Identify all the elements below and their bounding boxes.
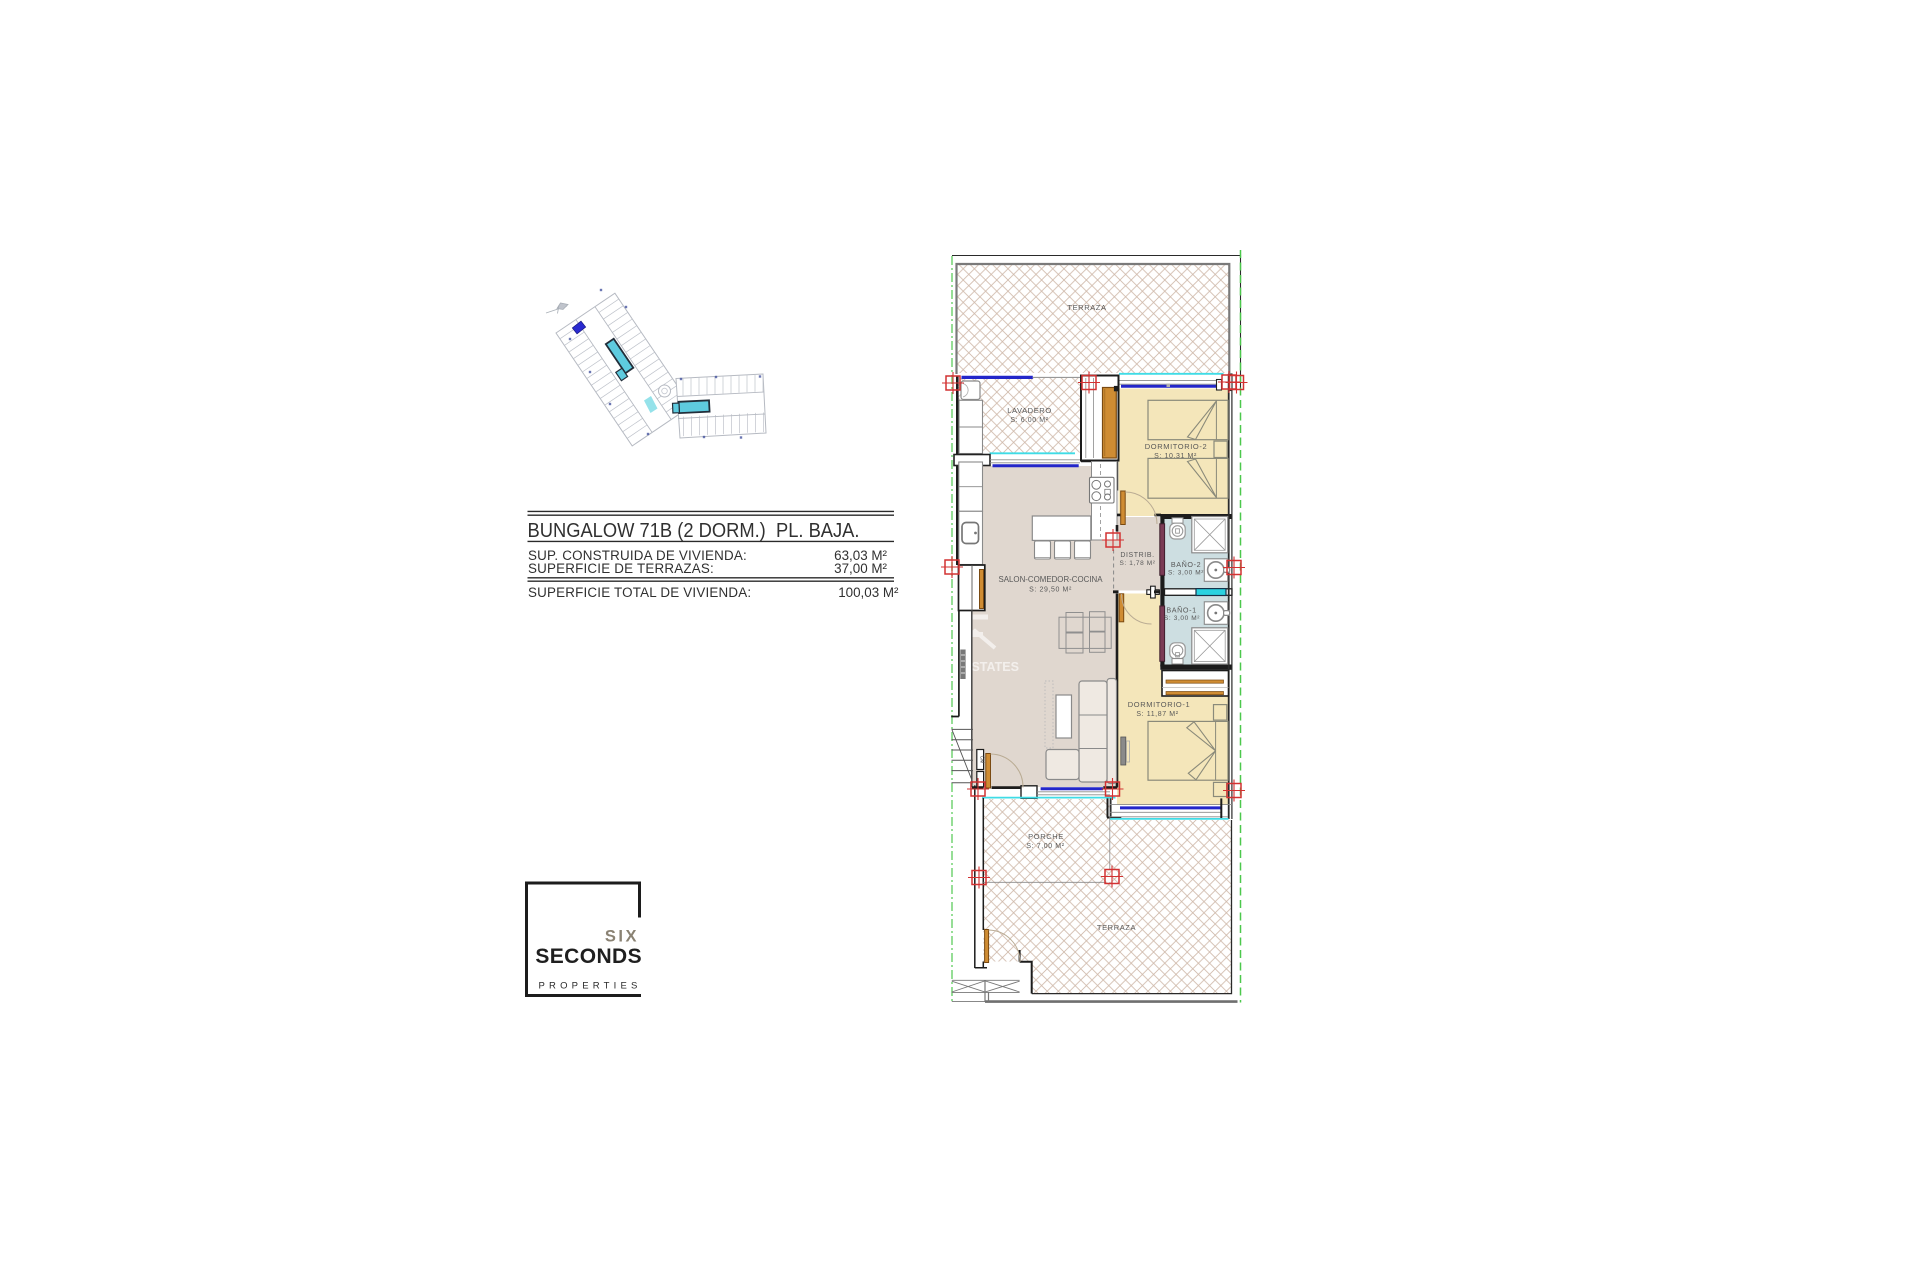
svg-text:37,00 M²: 37,00 M² xyxy=(834,561,887,576)
svg-text:PROPERTIES: PROPERTIES xyxy=(539,981,642,992)
svg-text:BAÑO-2: BAÑO-2 xyxy=(1171,560,1201,569)
svg-text:SALON-COMEDOR-COCINA: SALON-COMEDOR-COCINA xyxy=(999,575,1104,584)
svg-text:S: 11,87 M²: S: 11,87 M² xyxy=(1136,711,1178,718)
svg-text:100,03 M²: 100,03 M² xyxy=(838,585,899,600)
svg-text:TERRAZA: TERRAZA xyxy=(1067,303,1106,312)
svg-text:SIX: SIX xyxy=(605,928,639,946)
svg-text:LAVADERO: LAVADERO xyxy=(1007,406,1052,415)
svg-text:S: 7,00 M²: S: 7,00 M² xyxy=(1026,843,1064,850)
svg-text:BUNGALOW 71B (2 DORM.) PL. BA: BUNGALOW 71B (2 DORM.) PL. BAJA. xyxy=(528,520,860,542)
svg-text:S: 29,50 M²: S: 29,50 M² xyxy=(1029,587,1072,594)
svg-text:SECONDS: SECONDS xyxy=(535,945,642,968)
svg-text:DISTRIB.: DISTRIB. xyxy=(1120,552,1154,559)
svg-text:SUPERFICIE TOTAL DE VIVIENDA:: SUPERFICIE TOTAL DE VIVIENDA: xyxy=(528,585,751,600)
svg-text:DORMITORIO-1: DORMITORIO-1 xyxy=(1128,700,1190,709)
svg-text:CM: CM xyxy=(978,756,984,764)
svg-text:TERRAZA: TERRAZA xyxy=(1097,923,1136,932)
svg-text:BAÑO-1: BAÑO-1 xyxy=(1166,606,1196,615)
svg-text:S: 6.00 M²: S: 6.00 M² xyxy=(1010,417,1048,424)
svg-text:SUPERFICIE DE TERRAZAS:: SUPERFICIE DE TERRAZAS: xyxy=(528,561,714,576)
svg-text:S: 1,78 M²: S: 1,78 M² xyxy=(1120,560,1156,567)
svg-text:S: 3,00 M²: S: 3,00 M² xyxy=(1168,570,1204,577)
svg-text:S: 10.31 M²: S: 10.31 M² xyxy=(1154,453,1197,460)
svg-text:PORCHE: PORCHE xyxy=(1028,832,1064,841)
svg-text:DORMITORIO-2: DORMITORIO-2 xyxy=(1145,442,1207,451)
svg-text:S: 3,00 M²: S: 3,00 M² xyxy=(1164,615,1200,622)
